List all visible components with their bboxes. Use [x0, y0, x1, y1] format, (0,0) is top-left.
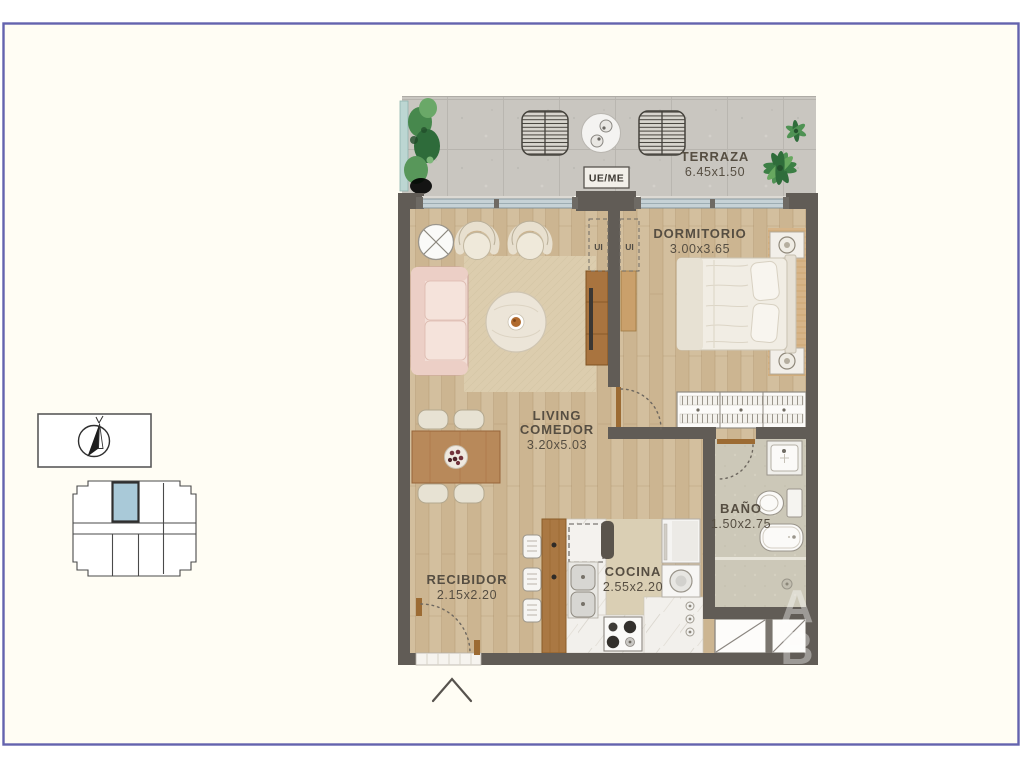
closet-right-label: UI	[625, 242, 634, 252]
tv-unit-icon	[586, 271, 608, 365]
living-dims: 3.20x5.03	[527, 438, 587, 452]
living-label-2: COMEDOR	[520, 422, 594, 437]
fridge-icon	[662, 519, 700, 563]
stool-icon	[523, 599, 541, 622]
bano-dims: 1.50x2.75	[711, 517, 771, 531]
key-plan-highlighted-unit	[113, 483, 139, 522]
bed-icon	[677, 255, 796, 353]
pillow-icon	[750, 303, 779, 343]
living-label-1: LIVING	[533, 408, 582, 423]
sliding-window-icon	[416, 197, 578, 209]
sliding-window-icon	[634, 197, 789, 209]
side-table-icon	[419, 225, 454, 260]
dining-chair-icon	[454, 484, 484, 503]
terrace-table-icon	[582, 114, 621, 153]
sofa-icon	[411, 267, 468, 375]
recibidor-label: RECIBIDOR	[426, 572, 507, 587]
cocina-label: COCINA	[605, 564, 662, 579]
floor-plan-canvas: UE/ME TERRAZA 6.45x1.50 DORMITORIO 3.00x…	[0, 0, 1024, 768]
kitchen-sink-icon	[568, 562, 598, 618]
appliance-provision	[569, 524, 603, 562]
nightstand-icon	[770, 232, 804, 258]
dining-chair-icon	[418, 484, 448, 503]
recibidor-dims: 2.15x2.20	[437, 588, 497, 602]
stool-icon	[523, 568, 541, 591]
washing-machine-icon	[662, 565, 700, 597]
terraza-dims: 6.45x1.50	[685, 165, 745, 179]
key-plan	[73, 481, 196, 576]
wardrobe-icon	[677, 392, 806, 428]
stove-icon	[604, 617, 642, 651]
counter-knobs	[686, 602, 694, 636]
terraza-label: TERRAZA	[681, 149, 749, 164]
dormitorio-label: DORMITORIO	[653, 226, 746, 241]
entry-threshold	[416, 653, 481, 665]
dining-chair-icon	[454, 410, 484, 429]
watermark: A B	[780, 580, 813, 674]
lounge-chair-icon	[639, 111, 685, 155]
oven-icon	[601, 521, 614, 559]
closet-left-label: UI	[594, 242, 603, 252]
compass-icon	[38, 414, 151, 467]
dining-chair-icon	[418, 410, 448, 429]
floor-plan-page: UE/ME TERRAZA 6.45x1.50 DORMITORIO 3.00x…	[0, 0, 1024, 768]
cocina-dims: 2.55x2.20	[603, 580, 663, 594]
bathroom-sink-icon	[767, 441, 802, 475]
tv-icon	[589, 288, 593, 350]
breakfast-bar-icon	[542, 519, 566, 653]
closet-shelf	[621, 271, 636, 331]
coffee-table-icon	[486, 292, 546, 352]
pillow-icon	[750, 261, 780, 302]
meter-box-label: UE/ME	[589, 173, 624, 185]
watermark-letter-2: B	[780, 622, 813, 674]
dormitorio-dims: 3.00x3.65	[670, 242, 730, 256]
bano-label: BAÑO	[720, 501, 762, 516]
stool-icon	[523, 535, 541, 558]
lounge-chair-icon	[522, 111, 568, 155]
dining-table-icon	[412, 431, 500, 483]
meter-box: UE/ME	[584, 167, 629, 188]
